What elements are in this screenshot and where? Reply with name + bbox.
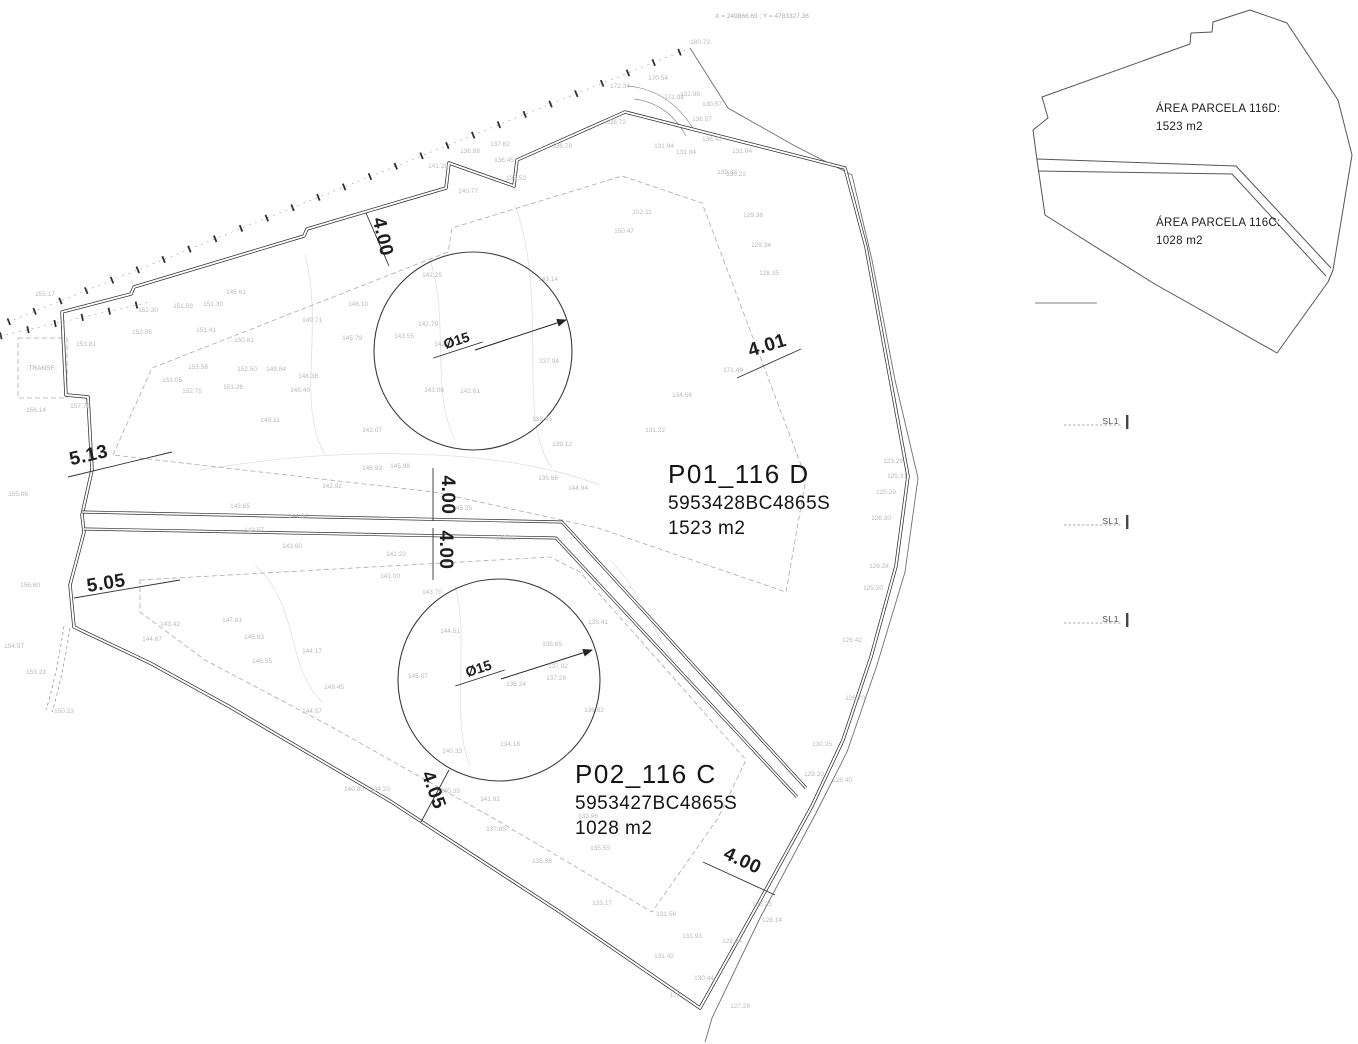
spot-elevation: 153.81 — [76, 341, 96, 348]
spot-elevation: 137.85 — [486, 826, 506, 833]
spot-elevation: 138.72 — [606, 119, 626, 126]
spot-elevation: 123.29 — [883, 458, 903, 465]
parcel-title: P02_116 C — [575, 759, 717, 789]
spot-elevation: 136.45 — [494, 157, 514, 164]
dimension-label: 4.00 — [368, 215, 397, 258]
spot-elevation: 143.08 — [424, 387, 444, 394]
spot-elevation: 142.61 — [460, 388, 480, 395]
spot-elevation: 134.56 — [672, 392, 692, 399]
spot-elevation: 143.57 — [244, 527, 264, 534]
spot-elevation: 129.20 — [804, 771, 824, 778]
spot-elevation: 131.04 — [732, 148, 752, 155]
section-tick — [1126, 415, 1128, 429]
spot-elevation: 149.84 — [266, 366, 286, 373]
inset-area-d-title: ÁREA PARCELA 116D: — [1156, 102, 1281, 115]
spot-elevation: 142.25 — [422, 272, 442, 279]
spot-elevation: 136.78 — [552, 143, 572, 150]
dimension-label: 4.00 — [437, 476, 458, 515]
spot-elevation: 137.28 — [546, 675, 566, 682]
spot-elevation: 134.23 — [370, 786, 390, 793]
section-marker: SL1 — [1064, 515, 1128, 529]
section-marker-layer: SL1SL1SL1 — [1064, 415, 1128, 627]
spot-elevation: 149.45 — [324, 684, 344, 691]
spot-elevation: 131.56 — [656, 911, 676, 918]
spot-elevation: 150.23 — [54, 708, 74, 715]
spot-elevation: 141.28 — [428, 163, 448, 170]
spot-elevation: 141.00 — [380, 573, 400, 580]
spot-elevation: 152.30 — [138, 307, 158, 314]
section-tick — [1126, 515, 1128, 529]
spot-elevation: 143.65 — [230, 503, 250, 510]
parcel-area: 1028 m2 — [575, 818, 652, 839]
spot-elevation: 142.92 — [322, 483, 342, 490]
spot-elevation: 153.23 — [26, 669, 46, 676]
section-marker: SL1 — [1064, 415, 1128, 429]
spot-elevation: 139.45 — [532, 416, 552, 423]
site-plan-canvas: 141.28136.88137.82136.45138.53140.77136.… — [0, 0, 1358, 1044]
spot-elevation: 171.49 — [723, 367, 743, 374]
spot-elevation: 137.02 — [548, 663, 568, 670]
spot-elevation: 138.53 — [506, 175, 526, 182]
spot-elevation: 172.98 — [664, 94, 684, 101]
spot-elevation: 155.06 — [8, 491, 28, 498]
spot-elevation: 135.41 — [588, 619, 608, 626]
spot-elevation: 130.57 — [702, 101, 722, 108]
spot-elevation: 135.65 — [542, 641, 562, 648]
spot-elevation: 128.40 — [832, 777, 852, 784]
spot-elevation: 156.14 — [26, 407, 46, 414]
spot-elevation: 153.58 — [188, 364, 208, 371]
spot-elevation: 125.29 — [876, 489, 896, 496]
spot-elevation: 126.42 — [842, 637, 862, 644]
spot-elevation: 129.38 — [743, 212, 763, 219]
spot-elevation: 141.92 — [480, 796, 500, 803]
scanned-site-plan-page: 141.28136.88137.82136.45138.53140.77136.… — [0, 0, 1358, 1044]
spot-elevation: 170.54 — [648, 75, 668, 82]
spot-elevation: 130.44 — [694, 975, 714, 982]
spot-elevation: 134.18 — [500, 741, 520, 748]
spot-elevation: 143.42 — [160, 621, 180, 628]
spot-elevation: 170 — [670, 992, 681, 999]
dimension-label: 5.05 — [85, 570, 127, 597]
spot-elevation: 139.12 — [552, 441, 572, 448]
spot-elevation: 152.50 — [237, 366, 257, 373]
road-edge-left — [46, 626, 70, 712]
section-marker-label: SL1 — [1102, 614, 1119, 624]
spot-elevation: 143.14 — [538, 276, 558, 283]
spot-elevation: 152.75 — [182, 388, 202, 395]
parcel-cadastral-ref: 5953428BC4865S — [668, 493, 830, 514]
spot-elevation: 150.81 — [234, 337, 254, 344]
spot-elevation: 148.38 — [298, 373, 318, 380]
spot-elevation: 131.93 — [682, 933, 702, 940]
spot-elevation: 145.79 — [342, 335, 362, 342]
spot-elevation: 130.25 — [812, 741, 832, 748]
spot-elevation: 127.28 — [730, 1003, 750, 1010]
dimension-label: 5.13 — [67, 441, 110, 470]
inset-area-d-value: 1523 m2 — [1156, 121, 1203, 133]
spot-elevation: 149.11 — [260, 417, 280, 424]
spot-elevation: 137.82 — [490, 141, 510, 148]
spot-elevation: 125.31 — [887, 473, 907, 480]
spot-elevation: 142.79 — [418, 321, 438, 328]
spot-elevation: 126.30 — [871, 515, 891, 522]
inset-area-c-title: ÁREA PARCELA 116C: — [1156, 216, 1281, 229]
spot-elevation: 157.76 — [70, 403, 90, 410]
spot-elevation: 143.70 — [422, 589, 442, 596]
spot-elevation: 136.57 — [692, 116, 712, 123]
spot-elevation: 140.80 — [344, 786, 364, 793]
spot-elevation: 133.17 — [592, 900, 612, 907]
dimension-label: 4.00 — [435, 531, 456, 570]
spot-elevation: 146.10 — [348, 301, 368, 308]
spot-elevation: 136.88 — [460, 148, 480, 155]
spot-elevation: 136.42 — [702, 136, 722, 143]
parcel-area: 1523 m2 — [668, 518, 745, 539]
spot-elevation: 129.34 — [751, 242, 771, 249]
section-marker: SL1 — [1064, 613, 1128, 627]
spot-elevation: 152.11 — [632, 209, 652, 216]
spot-elevation: 145.98 — [390, 463, 410, 470]
spot-elevation: 155.17 — [35, 291, 55, 298]
spot-elevation: 128.35 — [759, 270, 779, 277]
spot-elevation: 141.22 — [386, 551, 406, 558]
spot-elevation: 144.51 — [440, 628, 460, 635]
spot-elevation: 150.47 — [614, 228, 634, 235]
spot-elevation: 149.71 — [302, 317, 322, 324]
road-edge-right — [690, 48, 918, 1042]
spot-elevation: 172.34 — [610, 83, 630, 90]
spot-elevation: 180.73 — [690, 39, 710, 46]
spot-elevation: 138.25 — [752, 901, 772, 908]
spot-elevation: 136.24 — [506, 681, 526, 688]
spot-elevation: 125.20 — [863, 585, 883, 592]
spot-elevation: 156.60 — [20, 582, 40, 589]
section-tick — [1126, 613, 1128, 627]
spot-elevation: 154.57 — [4, 643, 24, 650]
dimension-label: 4.00 — [720, 843, 764, 879]
spot-elevation: 144.84 — [288, 513, 308, 520]
spot-elevation: 137.94 — [539, 358, 559, 365]
spot-elevation: 135.86 — [532, 858, 552, 865]
spot-elevation-layer: 141.28136.88137.82136.45138.53140.77136.… — [4, 39, 907, 1010]
spot-elevation: 143.60 — [282, 543, 302, 550]
tank-circle-2 — [398, 579, 600, 781]
spot-elevation: 151.41 — [196, 327, 216, 334]
spot-elevation: 135.66 — [538, 475, 558, 482]
parcel-title: P01_116 D — [668, 459, 810, 489]
spot-elevation: 151.59 — [173, 303, 193, 310]
setback-line-parcel-c — [140, 557, 746, 912]
spot-elevation: 151.30 — [203, 301, 223, 308]
spot-elevation: 145.07 — [408, 673, 428, 680]
diameter-label: Ø15 — [441, 328, 471, 351]
spot-elevation: 126.24 — [869, 563, 889, 570]
diameter-label: Ø15 — [463, 656, 493, 679]
spot-elevation: 144.17 — [302, 648, 322, 655]
spot-elevation: 146.55 — [252, 658, 272, 665]
inset-area-c-value: 1028 m2 — [1156, 235, 1203, 247]
spot-elevation: 145.93 — [244, 634, 264, 641]
spot-elevation: 131.22 — [645, 427, 665, 434]
section-marker-label: SL1 — [1102, 416, 1119, 426]
spot-elevation: 131.42 — [654, 953, 674, 960]
spot-elevation: 140.77 — [458, 188, 478, 195]
spot-elevation: 140.33 — [442, 748, 462, 755]
spot-elevation: 143.07 — [362, 427, 382, 434]
spot-elevation: 126.70 — [845, 695, 865, 702]
spot-elevation: 144.94 — [568, 485, 588, 492]
spot-elevation: 147.81 — [222, 617, 242, 624]
dimension-label: 4.05 — [417, 768, 450, 812]
spot-elevation: 130.22 — [726, 171, 746, 178]
spot-elevation: 136.82 — [584, 707, 604, 714]
spot-elevation: 135.55 — [590, 845, 610, 852]
spot-elevation: 152.05 — [132, 329, 152, 336]
spot-elevation: 143.55 — [394, 333, 414, 340]
spot-elevation: 148.40 — [290, 387, 310, 394]
spot-elevation: 151.26 — [223, 384, 243, 391]
parcel-cadastral-ref: 5953427BC4865S — [575, 793, 737, 814]
inset-outline — [1033, 10, 1352, 353]
inset-overview: ÁREA PARCELA 116D: 1523 m2 ÁREA PARCELA … — [1033, 10, 1352, 353]
spot-elevation: 129.24 — [722, 938, 742, 945]
spot-elevation: 128.14 — [762, 917, 782, 924]
spot-elevation: 131.94 — [654, 143, 674, 150]
spot-elevation: 131.84 — [676, 149, 696, 156]
spot-elevation: 143.02 — [496, 535, 516, 542]
annotation-layer: TRANSF. — [28, 365, 55, 372]
section-marker-label: SL1 — [1102, 516, 1119, 526]
spot-elevation: 145.61 — [226, 289, 246, 296]
parcel-label-layer: P01_116 D5953428BC4865S1523 m2P02_116 C5… — [575, 459, 830, 839]
survey-marker-line — [0, 48, 690, 336]
spot-elevation: 151.05 — [162, 377, 182, 384]
annotation: TRANSF. — [28, 365, 55, 372]
spot-elevation: 146.93 — [362, 465, 382, 472]
grid-coordinates-text: X = 249866.69 ; Y = 4783327.36 — [715, 13, 809, 20]
spot-elevation: 144.67 — [142, 636, 162, 643]
spot-elevation: 144.57 — [302, 708, 322, 715]
